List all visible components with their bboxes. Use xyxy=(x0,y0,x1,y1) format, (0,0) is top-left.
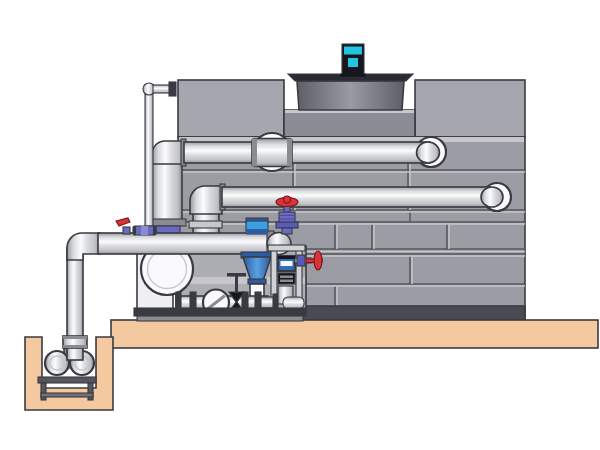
suction-drop-pipe xyxy=(63,248,87,360)
middle-elbow xyxy=(190,186,222,214)
concrete-slab xyxy=(111,320,598,348)
illustration-canvas xyxy=(0,0,600,450)
upper-elbow xyxy=(152,141,184,164)
gate-valve-handle xyxy=(227,273,246,277)
fan-motor xyxy=(341,44,366,77)
fan-deck-recess xyxy=(284,110,415,137)
pump-stand-bar xyxy=(41,393,93,397)
left-riser xyxy=(152,160,182,220)
pump-stand-top xyxy=(38,377,96,383)
junction-box xyxy=(278,273,295,284)
middle-pipe-dome xyxy=(481,187,503,207)
riser-flange xyxy=(189,221,222,228)
side-red-handwheel xyxy=(314,251,322,270)
globe-valve-red-handwheel xyxy=(276,196,298,234)
left-riser-flange xyxy=(148,219,186,226)
motor-window xyxy=(348,58,358,67)
cooling-tower-diagram xyxy=(0,0,600,450)
skid-base xyxy=(134,308,306,321)
pipe-coupling xyxy=(252,139,292,167)
valve-bonnet xyxy=(279,212,295,223)
sump-pump-motor xyxy=(45,351,69,375)
motor-top-band xyxy=(344,47,362,55)
upper-pipe-dome xyxy=(417,142,440,163)
fan-cowl xyxy=(297,81,404,110)
makeup-flange xyxy=(169,82,176,96)
